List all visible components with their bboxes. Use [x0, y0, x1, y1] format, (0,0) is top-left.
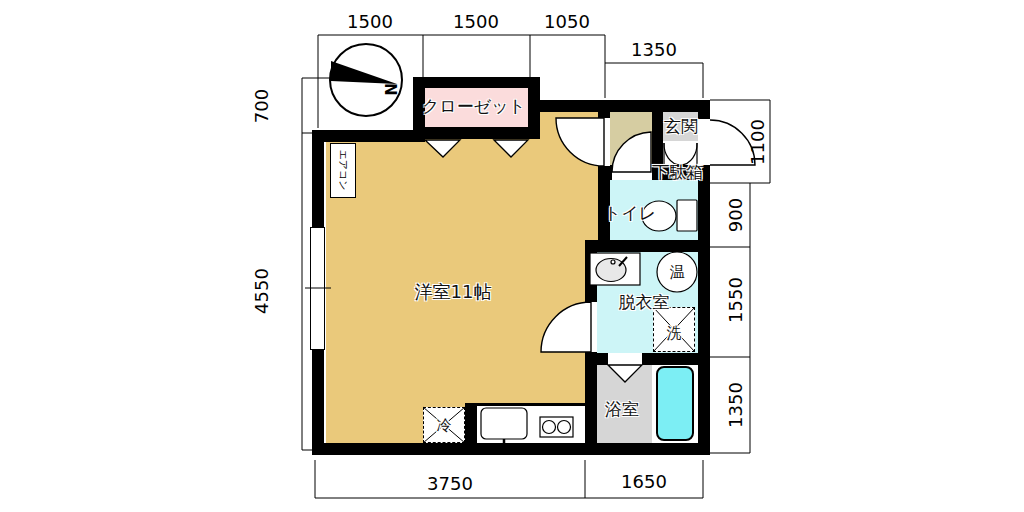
dim-top-right: 1350 — [631, 41, 677, 59]
room-closet-label: クローゼット — [422, 98, 526, 115]
dim-left-1: 700 — [253, 89, 271, 123]
room-hall-floor — [610, 112, 652, 165]
dim-top-2: 1500 — [453, 13, 499, 31]
room-toilet-label: トイレ — [604, 205, 656, 222]
room-dressing-label: 脱衣室 — [619, 294, 670, 311]
wall — [585, 353, 710, 365]
room-main-label: 洋室11帖 — [415, 283, 492, 301]
wall — [413, 77, 540, 88]
dim-bottom-1: 3750 — [427, 475, 473, 493]
shoe-box-label: 下駄箱 — [653, 164, 704, 181]
wall — [585, 240, 710, 252]
kitchen-counter — [477, 406, 585, 443]
dim-right-4: 1350 — [727, 382, 745, 428]
dim-right-2: 900 — [727, 198, 745, 232]
aircon-label: エアコン — [336, 150, 350, 191]
wall — [312, 443, 710, 455]
dim-left-2: 4550 — [253, 268, 271, 314]
wall — [528, 100, 710, 112]
wall — [312, 130, 425, 142]
room-bath-label: 浴室 — [605, 401, 639, 418]
door-opening-toilet — [612, 165, 652, 180]
dim-top-1: 1500 — [347, 13, 393, 31]
washer-space-label: 洗 — [667, 326, 682, 341]
dim-right-3: 1550 — [727, 277, 745, 323]
dim-top-3: 1050 — [544, 13, 590, 31]
door-opening-bath — [608, 353, 642, 365]
compass: N — [330, 44, 402, 116]
fridge-space-label: 冷 — [437, 418, 452, 433]
room-main-floor-upper — [540, 112, 598, 142]
compass-north-label: N — [381, 83, 399, 96]
room-main-floor-under-closet — [425, 139, 540, 143]
bathtub — [656, 366, 694, 441]
wall — [652, 112, 663, 165]
room-entrance-label: 玄関 — [664, 118, 698, 135]
wall — [465, 403, 477, 455]
window-left-wall — [310, 227, 325, 350]
door-opening-main-hall — [598, 118, 610, 166]
dim-right-1: 1100 — [749, 119, 767, 165]
door-opening-dressing — [585, 302, 597, 352]
dim-bottom-2: 1650 — [621, 473, 667, 491]
wall — [413, 127, 540, 139]
door-opening-entrance — [698, 119, 710, 165]
water-heater-label: 温 — [670, 265, 685, 280]
floorplan-canvas: N 洋室11帖 クローゼット 玄関 下駄箱 トイレ 脱衣室 浴室 洗 温 冷 エ… — [0, 0, 1024, 512]
compass-needle — [331, 61, 397, 84]
